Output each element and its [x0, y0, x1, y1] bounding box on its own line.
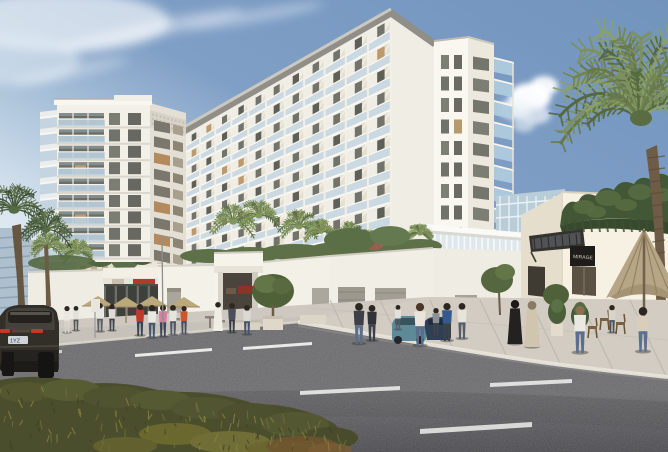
svg-text:1YZ: 1YZ: [10, 339, 21, 345]
